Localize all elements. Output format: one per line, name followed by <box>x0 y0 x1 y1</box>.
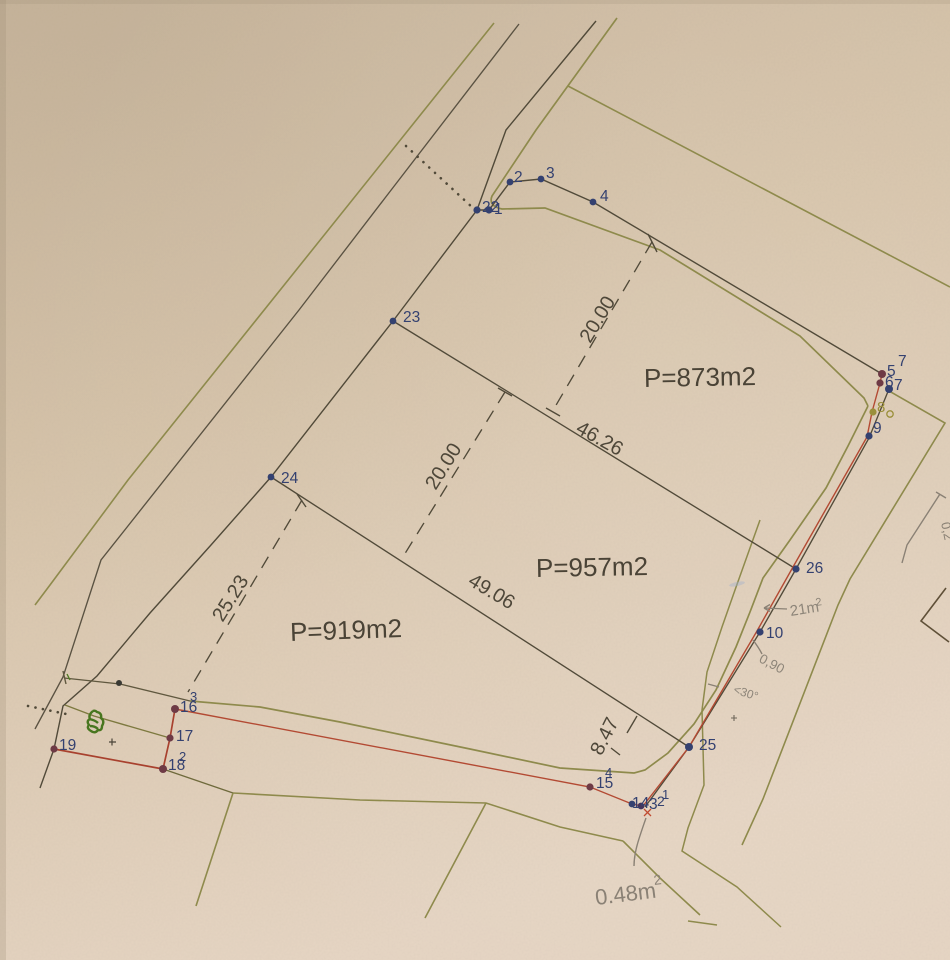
svg-text:P=873m2: P=873m2 <box>644 361 757 393</box>
svg-text:1: 1 <box>662 787 669 802</box>
svg-text:3: 3 <box>190 689 197 704</box>
svg-text:26: 26 <box>806 560 823 577</box>
svg-text:24: 24 <box>281 470 299 487</box>
svg-text:10: 10 <box>766 625 784 642</box>
svg-text:9: 9 <box>873 420 882 437</box>
svg-text:8: 8 <box>877 399 885 416</box>
svg-text:23: 23 <box>403 309 420 326</box>
svg-text:25: 25 <box>699 737 716 754</box>
svg-text:7: 7 <box>894 377 903 394</box>
svg-text:P=919m2: P=919m2 <box>289 613 402 647</box>
svg-text:2: 2 <box>179 749 186 764</box>
svg-text:1: 1 <box>494 201 503 218</box>
svg-text:4: 4 <box>605 765 612 780</box>
svg-text:P=957m2: P=957m2 <box>536 551 649 583</box>
svg-text:3: 3 <box>546 165 555 182</box>
svg-text:14: 14 <box>632 795 650 812</box>
svg-text:7: 7 <box>898 353 907 370</box>
svg-text:19: 19 <box>59 737 76 754</box>
svg-text:4: 4 <box>600 188 609 205</box>
svg-text:17: 17 <box>176 728 193 745</box>
svg-text:2: 2 <box>514 169 523 186</box>
